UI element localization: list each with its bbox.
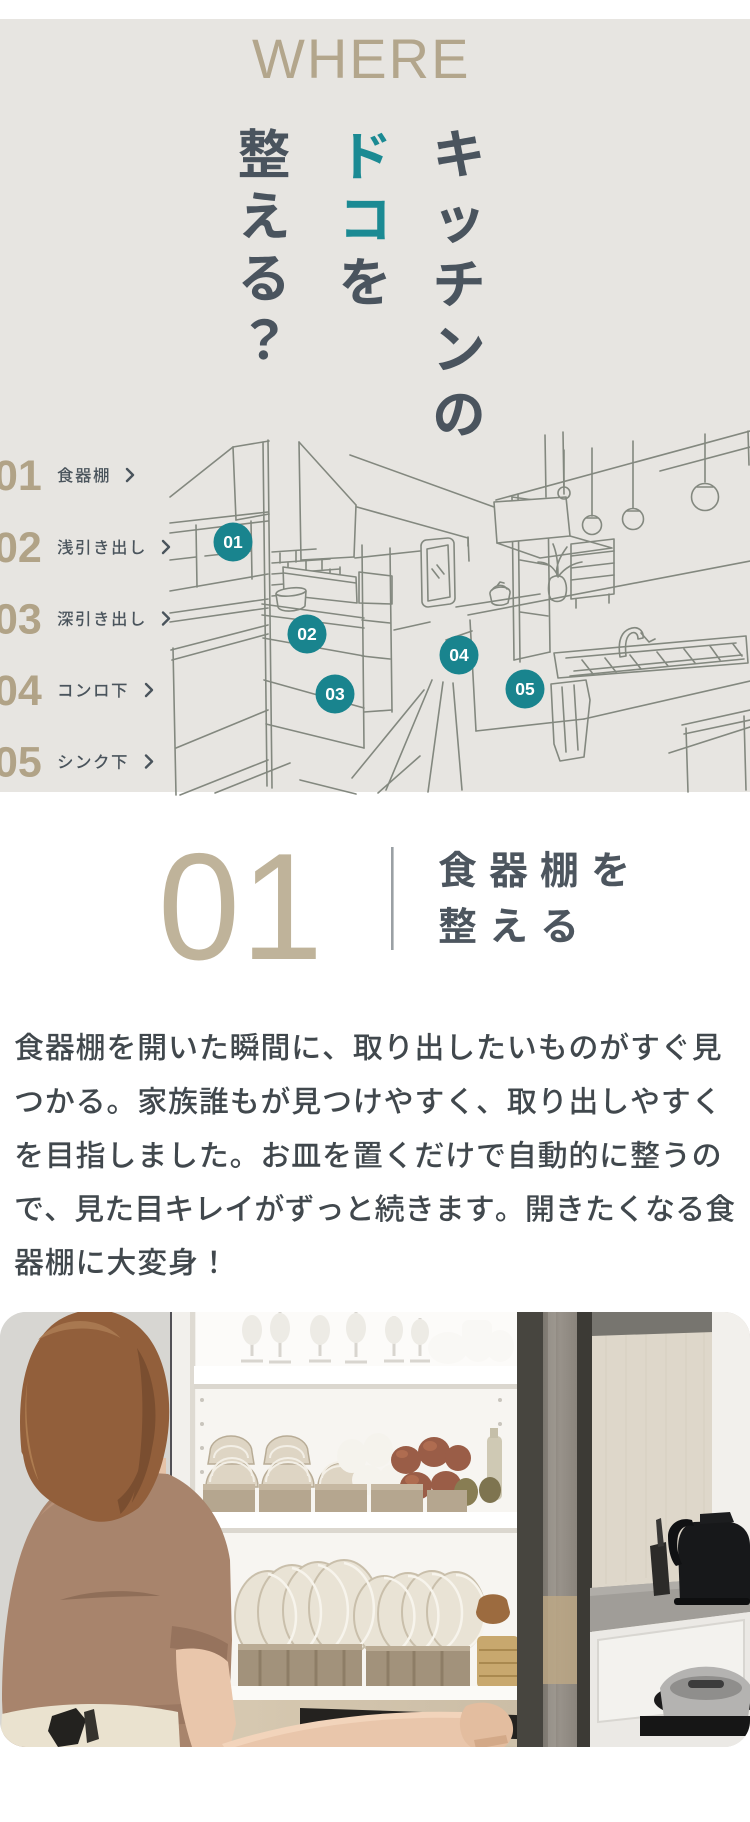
- svg-text:01: 01: [0, 452, 42, 500]
- svg-text:03: 03: [325, 684, 345, 704]
- svg-text:01: 01: [223, 532, 243, 552]
- svg-text:05: 05: [515, 679, 535, 699]
- svg-text:WHERE: WHERE: [252, 27, 470, 90]
- svg-text:05: 05: [0, 739, 42, 787]
- svg-text:02: 02: [0, 524, 42, 572]
- svg-text:03: 03: [0, 596, 42, 644]
- svg-text:02: 02: [297, 624, 317, 644]
- svg-text:04: 04: [0, 667, 42, 715]
- svg-text:04: 04: [449, 645, 469, 665]
- svg-text:01: 01: [158, 821, 324, 992]
